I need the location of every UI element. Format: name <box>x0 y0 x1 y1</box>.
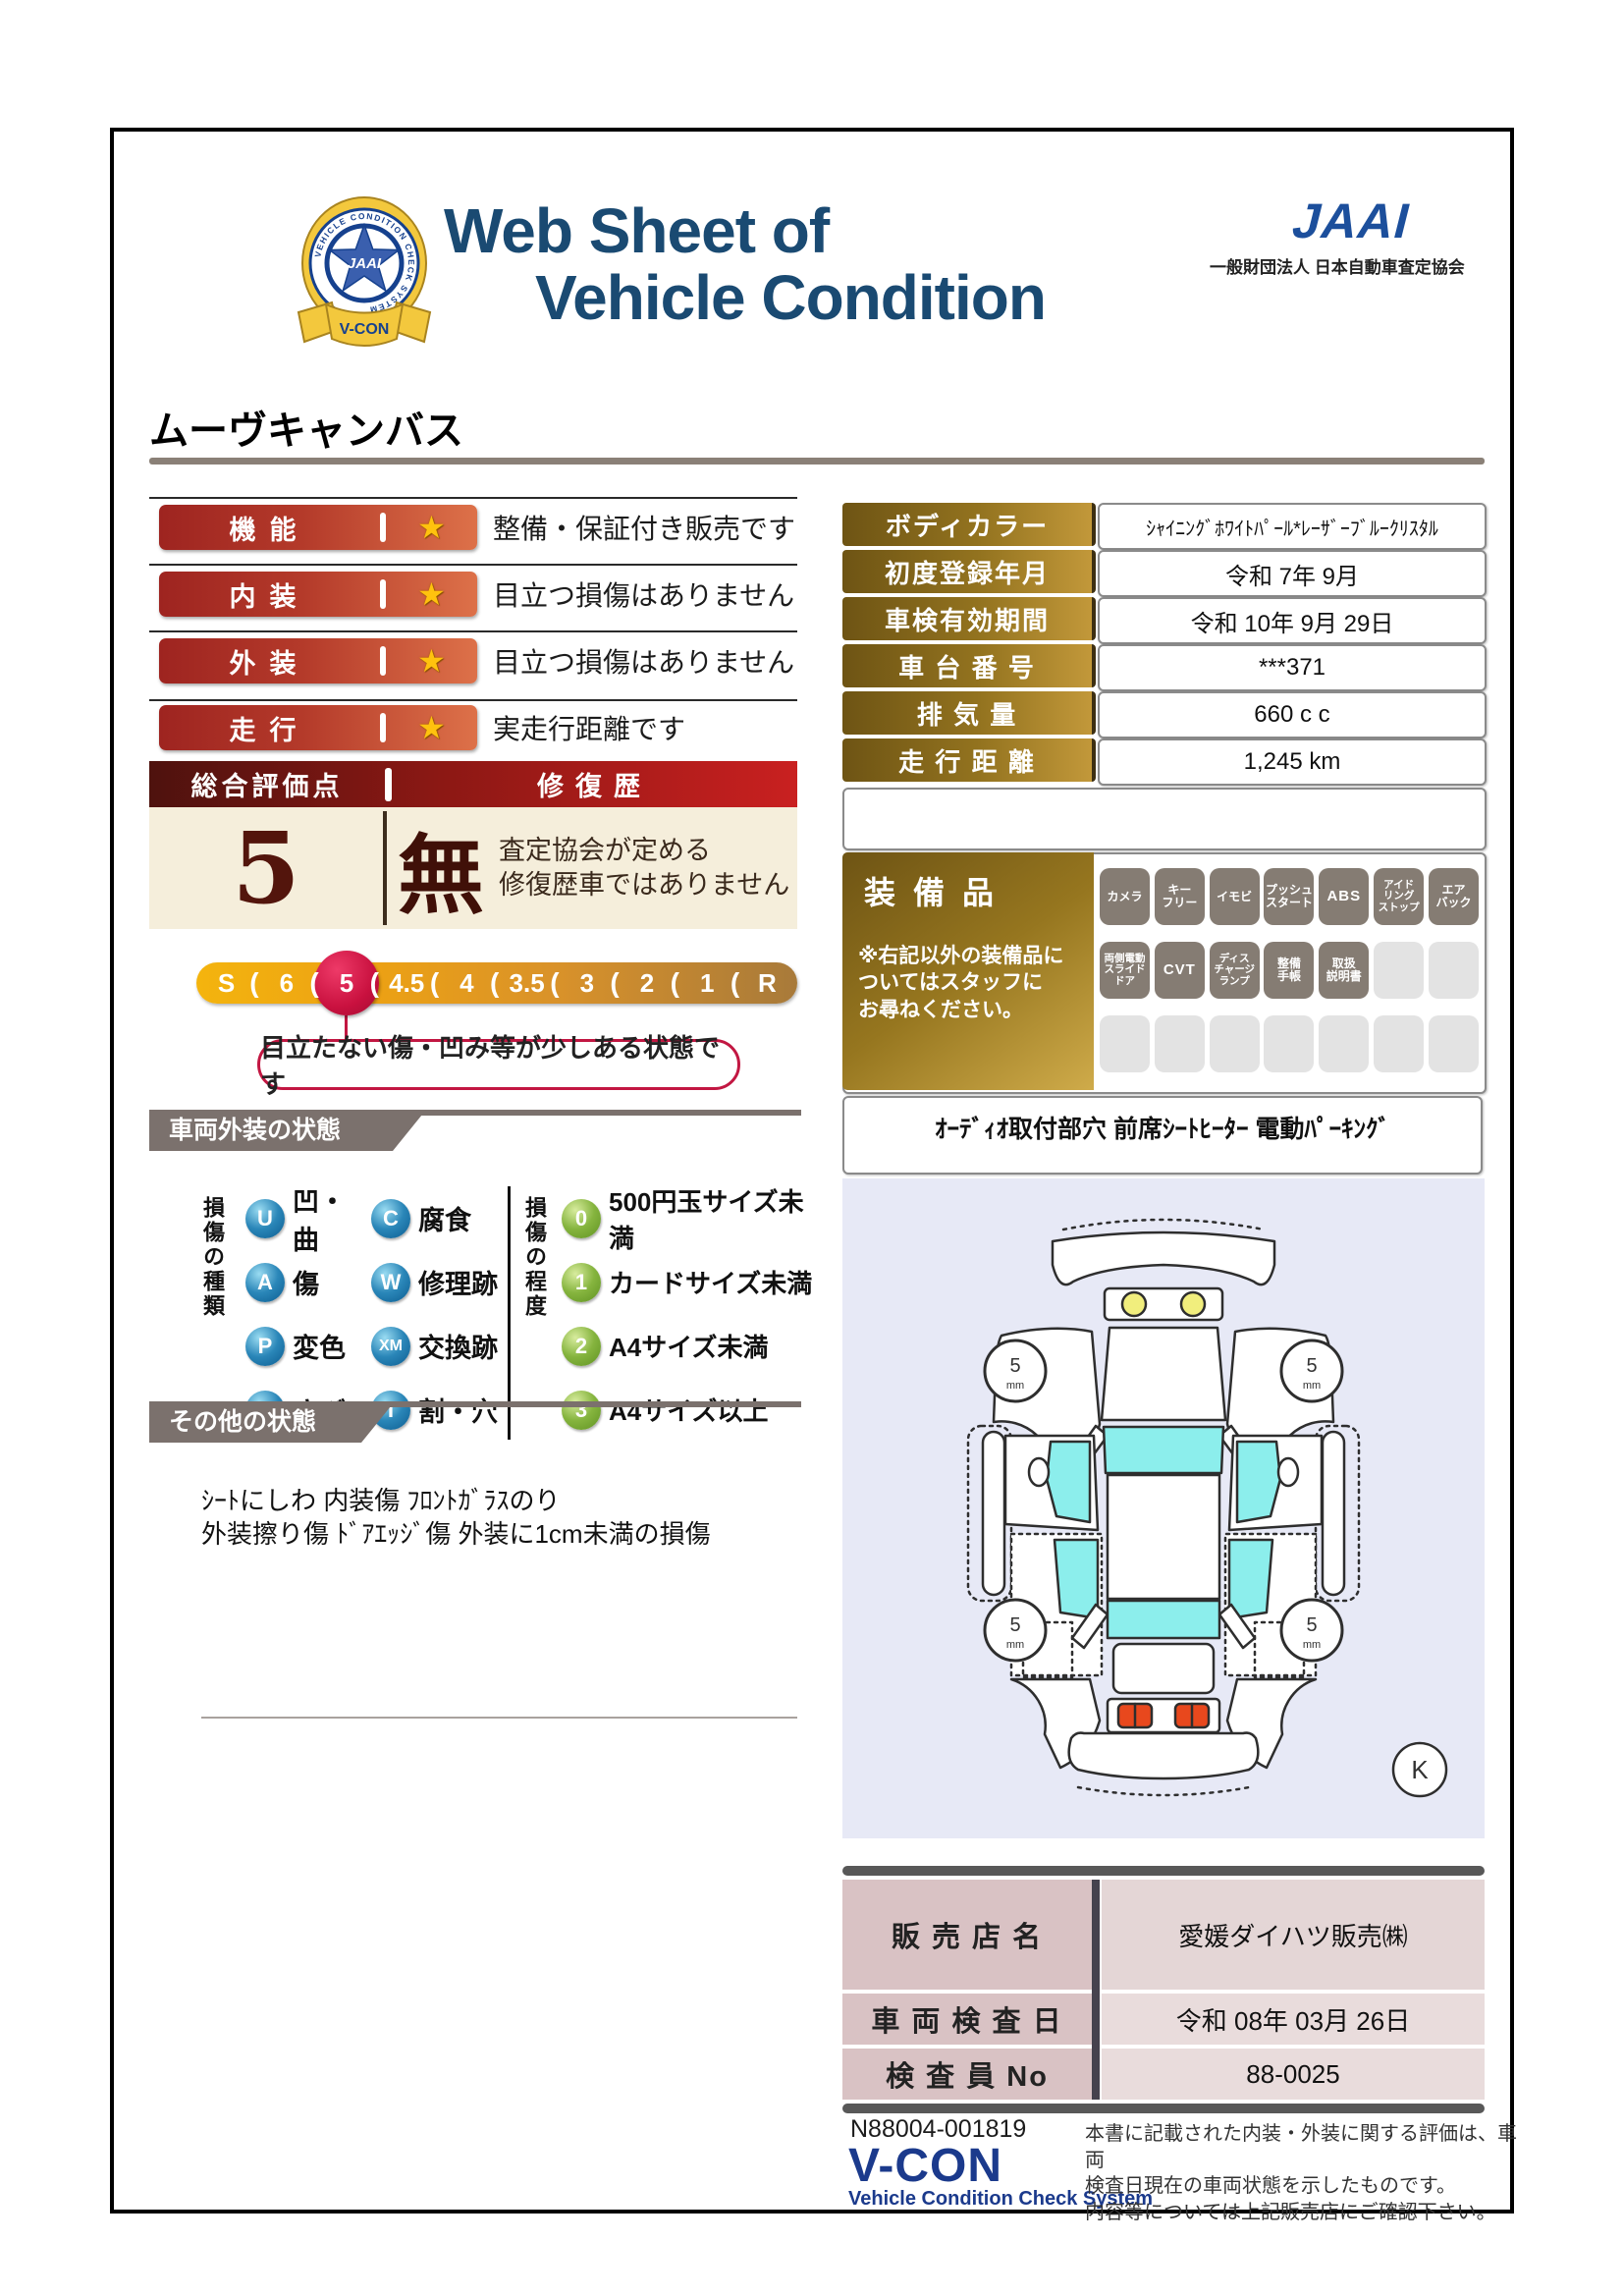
dealer-table-bottom-bar <box>842 2104 1485 2113</box>
equip-badge-airbag: エア バック <box>1429 868 1479 925</box>
rating-desc: 整備・保証付き販売です <box>493 505 797 550</box>
dealer-value-inspection-date: 令和 08年 03月 26日 <box>1102 1994 1485 2045</box>
scale-item-2: (2 <box>617 962 676 1004</box>
equip-badge-empty <box>1374 1015 1424 1072</box>
star-icon: ★ <box>386 575 477 613</box>
equip-badge-empty <box>1100 1015 1150 1072</box>
svg-text:mm: mm <box>1006 1639 1024 1651</box>
jaai-subtitle: 一般財団法人 日本自動車査定協会 <box>1210 253 1465 278</box>
rating-bar-exterior: 外装 ★ <box>159 638 477 683</box>
damage-code-W-icon: W <box>371 1263 410 1302</box>
damage-code-XM-icon: XM <box>371 1327 410 1366</box>
scale-separator: ( <box>610 967 619 999</box>
vcon-badge-logo: VEHICLE CONDITION CHECK SYSTEM JAAI V-CO… <box>291 192 438 357</box>
damage-degree-item: 3A4サイズ以上 <box>562 1378 817 1442</box>
scale-item-3p5: (3.5 <box>497 962 557 1004</box>
equipment-extra-text: ｵｰﾃﾞｨｵ取付部穴 前席ｼｰﾄﾋｰﾀｰ 電動ﾊﾟｰｷﾝｸﾞ <box>935 1110 1390 1173</box>
equip-badge-empty <box>1319 1015 1369 1072</box>
equip-badge-empty <box>1429 1015 1479 1072</box>
tailgate-panel <box>1113 1644 1214 1693</box>
repair-history-title: 修復歴 <box>392 765 797 803</box>
info-value-first-reg: 令和 7年 9月 <box>1098 550 1487 597</box>
svg-text:mm: mm <box>1303 1380 1321 1392</box>
scale-item-6: (6 <box>256 962 316 1004</box>
damage-type-item: T割・穴 <box>371 1378 526 1442</box>
overall-score-value: 5 <box>149 807 383 929</box>
equipment-title: 装備品 <box>864 868 1074 913</box>
svg-text:5: 5 <box>1009 1355 1020 1377</box>
degree-0-icon: 0 <box>562 1199 601 1238</box>
jaai-logo: JAAI <box>1287 192 1417 249</box>
grade-callout: 目立たない傷・凹み等が少しある状態です <box>257 1039 740 1090</box>
rating-separator <box>149 497 797 499</box>
diagram-corner-mark: K <box>1393 1743 1446 1796</box>
equipment-row-3 <box>1100 1015 1479 1072</box>
wheel-front-right: 5 mm <box>1281 1340 1342 1401</box>
info-value-displacement: 660 c c <box>1098 691 1487 738</box>
equip-badge-empty <box>1155 1015 1205 1072</box>
info-label-mileage: 走 行 距 離 <box>842 738 1096 782</box>
badge-ribbon-label: V-CON <box>340 321 390 338</box>
rating-desc: 実走行距離です <box>493 705 797 750</box>
damage-degree-item: 2A4サイズ未満 <box>562 1314 817 1378</box>
equip-badge-immobilizer: イモビ <box>1210 868 1260 925</box>
equip-badge-empty <box>1210 1015 1260 1072</box>
roof-panel <box>1108 1475 1219 1599</box>
scale-separator: ( <box>370 967 379 999</box>
dealer-label-shop: 販 売 店 名 <box>842 1880 1092 1990</box>
vehicle-name: ムーヴキャンバス <box>149 399 463 456</box>
equipment-row-1: カメラ キー フリー イモビ プッシュ スタート ABS アイド リング ストッ… <box>1100 868 1479 925</box>
doc-title-line1: Web Sheet of <box>444 194 829 267</box>
svg-text:mm: mm <box>1006 1380 1024 1392</box>
equipment-note: ※右記以外の装備品に ついてはスタッフに お尋ねください。 <box>858 943 1086 1023</box>
scale-item-s: S <box>196 962 256 1004</box>
damage-type-item: C腐食 <box>371 1186 526 1250</box>
dealer-table-divider <box>1092 1880 1100 2100</box>
rating-label: 走行 <box>159 709 380 747</box>
grade-scale-bar: S (6 (5 (4.5 (4 (3.5 (3 (2 (1 (R <box>196 962 797 1004</box>
svg-text:5: 5 <box>1306 1614 1317 1636</box>
info-value-mileage: 1,245 km <box>1098 738 1487 786</box>
equipment-extra-box: ｵｰﾃﾞｨｵ取付部穴 前席ｼｰﾄﾋｰﾀｰ 電動ﾊﾟｰｷﾝｸﾞ <box>842 1096 1483 1175</box>
damage-code-A-icon: A <box>245 1263 285 1302</box>
rating-separator <box>149 564 797 566</box>
scale-separator: ( <box>550 967 559 999</box>
overall-header-divider <box>385 768 392 801</box>
rating-desc: 目立つ損傷はありません <box>493 638 797 683</box>
equip-badge-manual: 取扱 説明書 <box>1319 942 1369 999</box>
wheel-front-left: 5 mm <box>985 1340 1046 1401</box>
rating-bar-function: 機能 ★ <box>159 505 477 550</box>
rear-bumper <box>1069 1733 1259 1778</box>
scale-item-1: (1 <box>677 962 737 1004</box>
rating-bar-mileage: 走行 ★ <box>159 705 477 750</box>
info-value-inspection-valid: 令和 10年 9月 29日 <box>1098 597 1487 644</box>
equip-badge-abs: ABS <box>1319 868 1369 925</box>
other-section-underline <box>201 1717 797 1719</box>
equip-badge-discharge-lamp: ディス チャージ ランプ <box>1210 942 1260 999</box>
scale-item-4: (4 <box>437 962 497 1004</box>
doc-title-line2: Vehicle Condition <box>535 261 1046 334</box>
svg-text:mm: mm <box>1303 1639 1321 1651</box>
headlight-left-icon <box>1122 1292 1146 1316</box>
windshield-glass <box>1104 1427 1223 1473</box>
equip-badge-keyfree: キー フリー <box>1155 868 1205 925</box>
rating-label: 内装 <box>159 575 380 614</box>
svg-text:K: K <box>1411 1755 1429 1784</box>
dealer-value-shop: 愛媛ダイハツ販売㈱ <box>1102 1880 1485 1990</box>
equip-badge-camera: カメラ <box>1100 868 1150 925</box>
star-icon: ★ <box>386 709 477 746</box>
damage-code-U-icon: U <box>245 1199 285 1238</box>
equip-badge-empty <box>1264 1015 1314 1072</box>
scale-separator: ( <box>309 967 318 999</box>
scale-item-4p5: (4.5 <box>377 962 437 1004</box>
overall-score-header: 総合評価点 修復歴 <box>149 761 797 807</box>
rating-label: 外装 <box>159 642 380 681</box>
badge-star-label: JAAI <box>348 255 382 272</box>
scale-separator: ( <box>490 967 499 999</box>
equipment-row-2: 両側電動 スライド ドア CVT ディス チャージ ランプ 整備 手帳 取扱 説… <box>1100 942 1479 999</box>
scale-item-3: (3 <box>557 962 617 1004</box>
damage-degree-item: 0500円玉サイズ未満 <box>562 1186 817 1250</box>
star-icon: ★ <box>386 642 477 680</box>
damage-degree-item: 1カードサイズ未満 <box>562 1250 817 1314</box>
info-label-chassis-no: 車 台 番 号 <box>842 644 1096 687</box>
overall-score-title: 総合評価点 <box>149 765 385 803</box>
rating-label: 機能 <box>159 509 380 547</box>
damage-code-P-icon: P <box>245 1327 285 1366</box>
scale-item-5-selected: (5 <box>316 962 376 1004</box>
info-value-body-color: ｼｬｲﾆﾝｸﾞﾎﾜｲﾄﾊﾟｰﾙ*ﾚｰｻﾞｰﾌﾞﾙｰｸﾘｽﾀﾙ <box>1098 503 1487 550</box>
equip-badge-power-slide-doors: 両側電動 スライド ドア <box>1100 942 1150 999</box>
degree-2-icon: 2 <box>562 1327 601 1366</box>
vcon-logo: V-CON <box>848 2139 1002 2193</box>
info-label-inspection-valid: 車検有効期間 <box>842 597 1096 640</box>
rating-bar-interior: 内装 ★ <box>159 572 477 617</box>
scale-item-r: (R <box>737 962 797 1004</box>
damage-type-item: W修理跡 <box>371 1250 526 1314</box>
dealer-value-inspector-no: 88-0025 <box>1102 2049 1485 2100</box>
equip-badge-empty <box>1429 942 1479 999</box>
rating-desc: 目立つ損傷はありません <box>493 572 797 617</box>
damage-type-item: XM交換跡 <box>371 1314 526 1378</box>
info-value-chassis-no: ***371 <box>1098 644 1487 691</box>
overall-body-divider <box>383 811 387 925</box>
damage-type-item: A傷 <box>245 1250 371 1314</box>
headlight-right-icon <box>1181 1292 1205 1316</box>
exterior-section-header: 車両外装の状態 <box>149 1110 426 1151</box>
other-state-text: ｼｰﾄにしわ 内装傷 ﾌﾛﾝﾄｶﾞﾗｽのり 外装擦り傷 ﾄﾞｱｴｯｼﾞ傷 外装に… <box>201 1485 711 1552</box>
other-section-header: その他の状態 <box>149 1401 395 1443</box>
svg-text:5: 5 <box>1009 1614 1020 1636</box>
svg-text:5: 5 <box>1306 1355 1317 1377</box>
repair-history-desc: 査定協会が定める 修復歴車ではありません <box>499 807 789 929</box>
scale-separator: ( <box>249 967 258 999</box>
rating-separator <box>149 630 797 632</box>
star-icon: ★ <box>386 509 477 546</box>
scale-separator: ( <box>430 967 439 999</box>
info-label-displacement: 排 気 量 <box>842 691 1096 735</box>
scale-separator: ( <box>671 967 679 999</box>
info-empty-box <box>842 788 1487 850</box>
rating-separator <box>149 699 797 701</box>
vehicle-condition-sheet: VEHICLE CONDITION CHECK SYSTEM JAAI V-CO… <box>0 0 1623 2296</box>
info-label-first-reg: 初度登録年月 <box>842 550 1096 593</box>
info-label-body-color: ボディカラー <box>842 503 1096 546</box>
scale-separator: ( <box>730 967 739 999</box>
equip-badge-idling-stop: アイド リング ストップ <box>1374 868 1424 925</box>
degree-1-icon: 1 <box>562 1263 601 1302</box>
header-divider <box>149 458 1485 465</box>
wheel-rear-left: 5 mm <box>985 1600 1046 1661</box>
rear-window-glass <box>1108 1601 1219 1638</box>
disclaimer-text: 本書に記載された内装・外装に関する評価は、車両 検査日現在の車両状態を示したもの… <box>1085 2121 1517 2225</box>
hood-panel <box>1102 1328 1225 1420</box>
dealer-label-inspector-no: 検 査 員 No <box>842 2049 1092 2100</box>
equip-badge-cvt: CVT <box>1155 942 1205 999</box>
vehicle-exterior-diagram: 5 mm 5 mm 5 mm 5 mm K <box>842 1178 1485 1838</box>
equip-badge-empty <box>1374 942 1424 999</box>
wheel-rear-right: 5 mm <box>1281 1600 1342 1661</box>
damage-type-item: U凹・曲 <box>245 1186 371 1250</box>
repair-history-flag: 無 <box>398 807 484 929</box>
damage-code-C-icon: C <box>371 1199 410 1238</box>
degree-3-icon: 3 <box>562 1391 601 1430</box>
damage-degree-label: 損傷の程度 <box>518 1196 550 1319</box>
damage-type-item: P変色 <box>245 1314 371 1378</box>
equip-badge-push-start: プッシュ スタート <box>1264 868 1314 925</box>
dealer-table-top-bar <box>842 1866 1485 1876</box>
dealer-label-inspection-date: 車 両 検 査 日 <box>842 1994 1092 2045</box>
equip-badge-service-book: 整備 手帳 <box>1264 942 1314 999</box>
damage-type-label: 損傷の種類 <box>196 1196 228 1319</box>
